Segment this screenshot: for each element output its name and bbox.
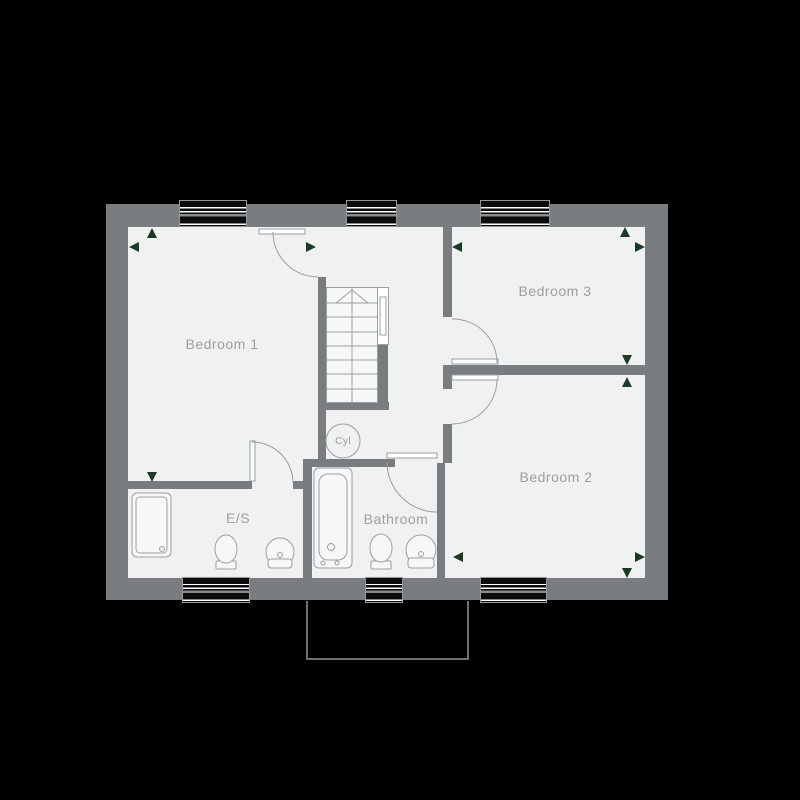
dimension-marker-icon (452, 242, 462, 252)
ensuite-toilet-bowl (215, 535, 237, 563)
door-bedroom1-leaf (259, 229, 305, 234)
dimension-marker-icon (147, 472, 157, 482)
dimension-marker-icon (635, 552, 645, 562)
dimension-marker-icon (453, 552, 463, 562)
door-bathroom-leaf (387, 453, 437, 458)
lower-roof-outline (307, 601, 468, 659)
door-bedroom1-arc (273, 232, 318, 277)
shower-tray (132, 493, 171, 557)
dimension-marker-icon (147, 228, 157, 238)
room-label-bedroom1: Bedroom 1 (186, 336, 259, 352)
room-label-ensuite: E/S (226, 510, 250, 526)
dimension-marker-icon (622, 377, 632, 387)
staircase (327, 288, 389, 403)
door-bedroom3-leaf (452, 359, 498, 364)
dimension-marker-icon (635, 242, 645, 252)
dimension-marker-icon (306, 242, 316, 252)
room-label-bedroom3: Bedroom 3 (519, 283, 592, 299)
floorplan-canvas: Bedroom 1 Bedroom 3 Bedroom 2 Bathroom E… (0, 0, 800, 800)
ensuite-fixtures (132, 493, 294, 569)
dimension-marker-icon (620, 227, 630, 237)
floorplan-graphics (0, 0, 800, 800)
door-bathroom-arc (387, 462, 437, 512)
stairs-banister (378, 288, 389, 345)
door-bedroom2-leaf (452, 375, 498, 380)
door-bedroom2-arc (452, 379, 497, 424)
door-ensuite-leaf (250, 441, 255, 481)
door-ensuite-arc (252, 442, 293, 483)
dimension-marker-icon (622, 355, 632, 365)
room-label-bathroom: Bathroom (364, 511, 429, 527)
door-bedroom3-arc (452, 319, 497, 363)
bathroom-toilet-bowl (370, 534, 392, 562)
dimension-marker-icon (129, 242, 139, 252)
dimension-marker-icon (622, 568, 632, 578)
room-label-bedroom2: Bedroom 2 (520, 469, 593, 485)
room-label-cylinder: Cyl (335, 435, 351, 447)
